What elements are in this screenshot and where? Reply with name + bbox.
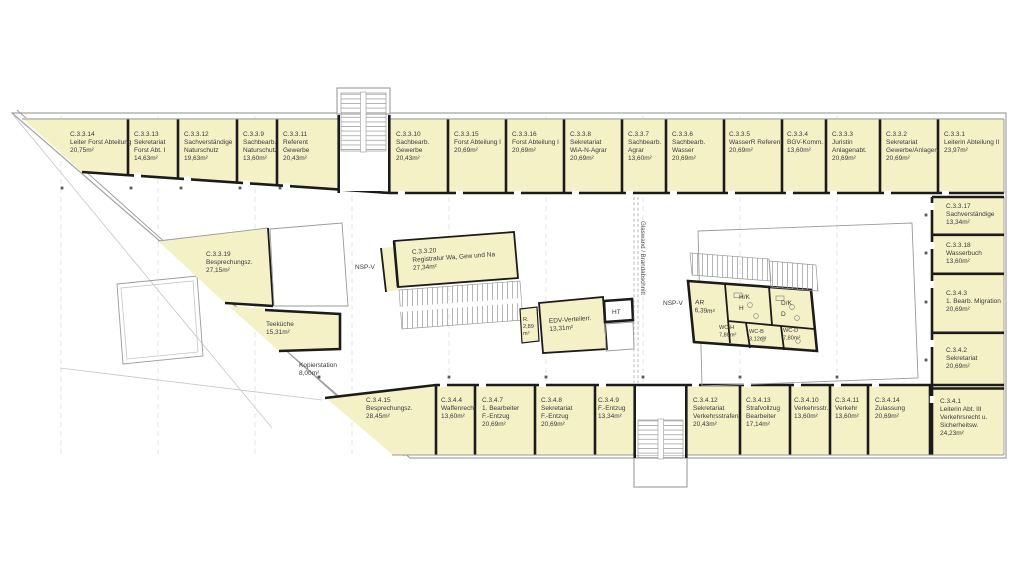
label-nsp-v-left: NSP-V: [355, 264, 376, 271]
label-glass-wall: Glaswand / Brandabschnitt: [639, 221, 646, 295]
label-c3411: C.3.4.11Verkehr13,60m²: [835, 397, 860, 420]
stairwell-bottom: [638, 419, 683, 459]
label-wc-b: WC-B3,12m²: [749, 329, 767, 342]
courtyard-void: [117, 276, 203, 364]
stairwell-top: [341, 92, 386, 152]
label-nsp-v-right: NSP-V: [663, 300, 684, 307]
label-wc-d: WC-D7,80m²: [783, 328, 801, 341]
label-c3311: C.3.3.11ReferentGewerbe20,43m²: [283, 131, 310, 162]
floor-plan-page: C.3.3.14Leiter Forst Abteilung20,75m² C.…: [0, 0, 1024, 576]
label-wc-h: WC-H7,80m²: [719, 325, 737, 338]
label-ht: HT: [612, 309, 621, 316]
floor-plan-drawing: C.3.3.14Leiter Forst Abteilung20,75m² C.…: [0, 0, 1024, 576]
